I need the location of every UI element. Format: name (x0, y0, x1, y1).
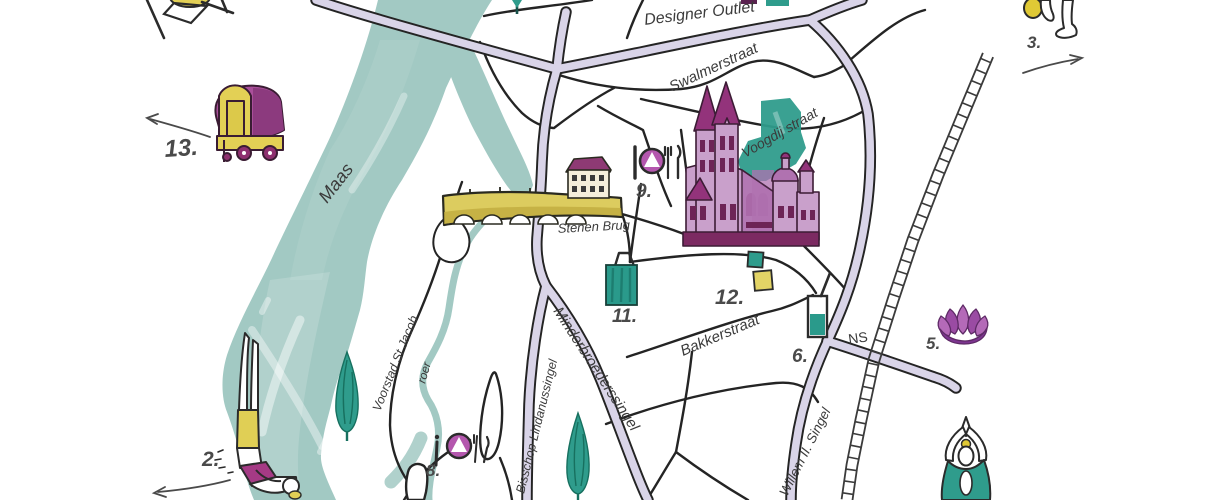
svg-text:8.: 8. (426, 461, 440, 480)
svg-text:5.: 5. (926, 334, 940, 353)
svg-text:13.: 13. (164, 134, 199, 163)
svg-text:2.: 2. (201, 448, 220, 471)
svg-text:11.: 11. (612, 306, 637, 327)
svg-text:9.: 9. (636, 181, 652, 202)
svg-text:12.: 12. (715, 286, 744, 309)
svg-text:NS: NS (847, 328, 868, 347)
svg-text:6.: 6. (792, 346, 808, 367)
svg-text:3.: 3. (1027, 33, 1041, 52)
